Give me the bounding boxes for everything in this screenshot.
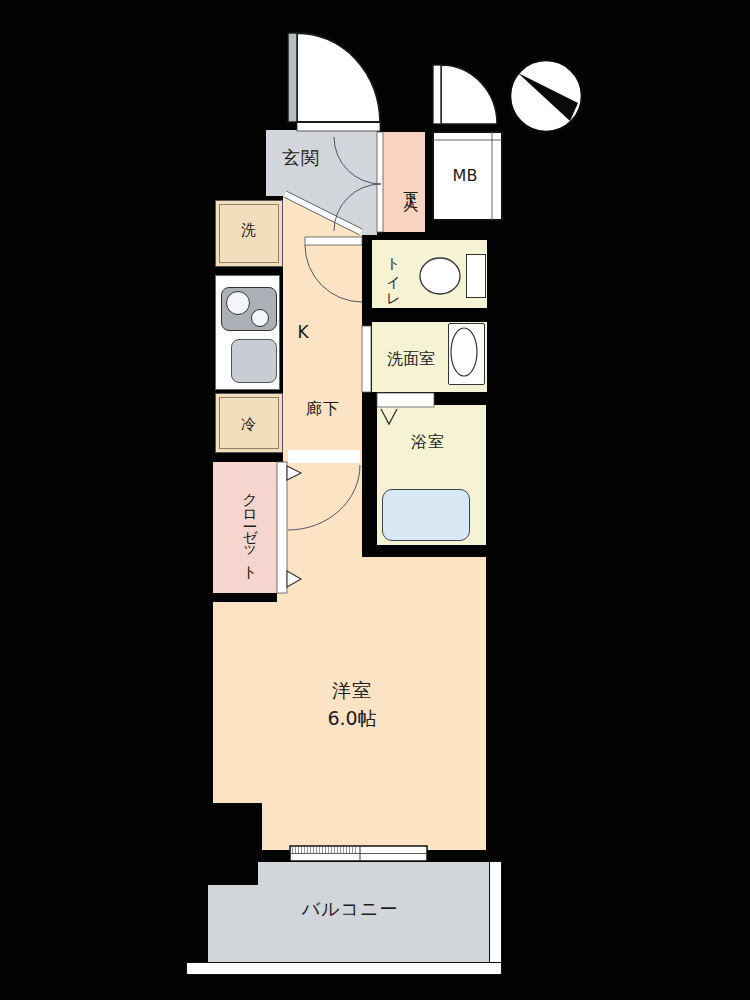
stove-burner-small — [251, 309, 269, 327]
floor-plan: 玄関 下足入 MB 洗 K 廊下 冷 トイレ 洗面室 浴室 クローゼット 洋室 … — [0, 0, 750, 1000]
shoe-cabinet-label: 下足入 — [388, 138, 420, 228]
washroom-label: 洗面室 — [372, 349, 450, 368]
hallway-label: 廊下 — [303, 399, 343, 418]
kitchen-sink — [231, 339, 277, 383]
refrigerator-label: 冷 — [215, 415, 283, 433]
kitchen-label: K — [283, 322, 323, 342]
balcony-railing-bottom — [186, 962, 502, 975]
compass-icon — [510, 60, 582, 132]
balcony-label: バルコニー — [270, 898, 430, 920]
stove-fixture — [221, 287, 277, 331]
balcony-railing-right — [489, 861, 502, 963]
washroom-vanity — [448, 323, 485, 385]
western-room-label: 洋室 — [292, 679, 412, 702]
genkan-label: 玄関 — [266, 147, 336, 169]
meter-box-label: MB — [432, 166, 498, 185]
bathtub — [382, 489, 470, 541]
bathroom-label: 浴室 — [378, 432, 478, 451]
entrance-door-icon — [288, 33, 380, 131]
stove-burner-large — [226, 291, 250, 315]
toilet-tank — [466, 254, 486, 298]
washroom-door-icon — [362, 326, 371, 392]
toilet-label: トイレ — [376, 246, 402, 304]
western-room-size: 6.0帖 — [292, 707, 412, 730]
closet-label: クローゼット — [229, 466, 259, 589]
washer-label: 洗 — [215, 221, 283, 239]
